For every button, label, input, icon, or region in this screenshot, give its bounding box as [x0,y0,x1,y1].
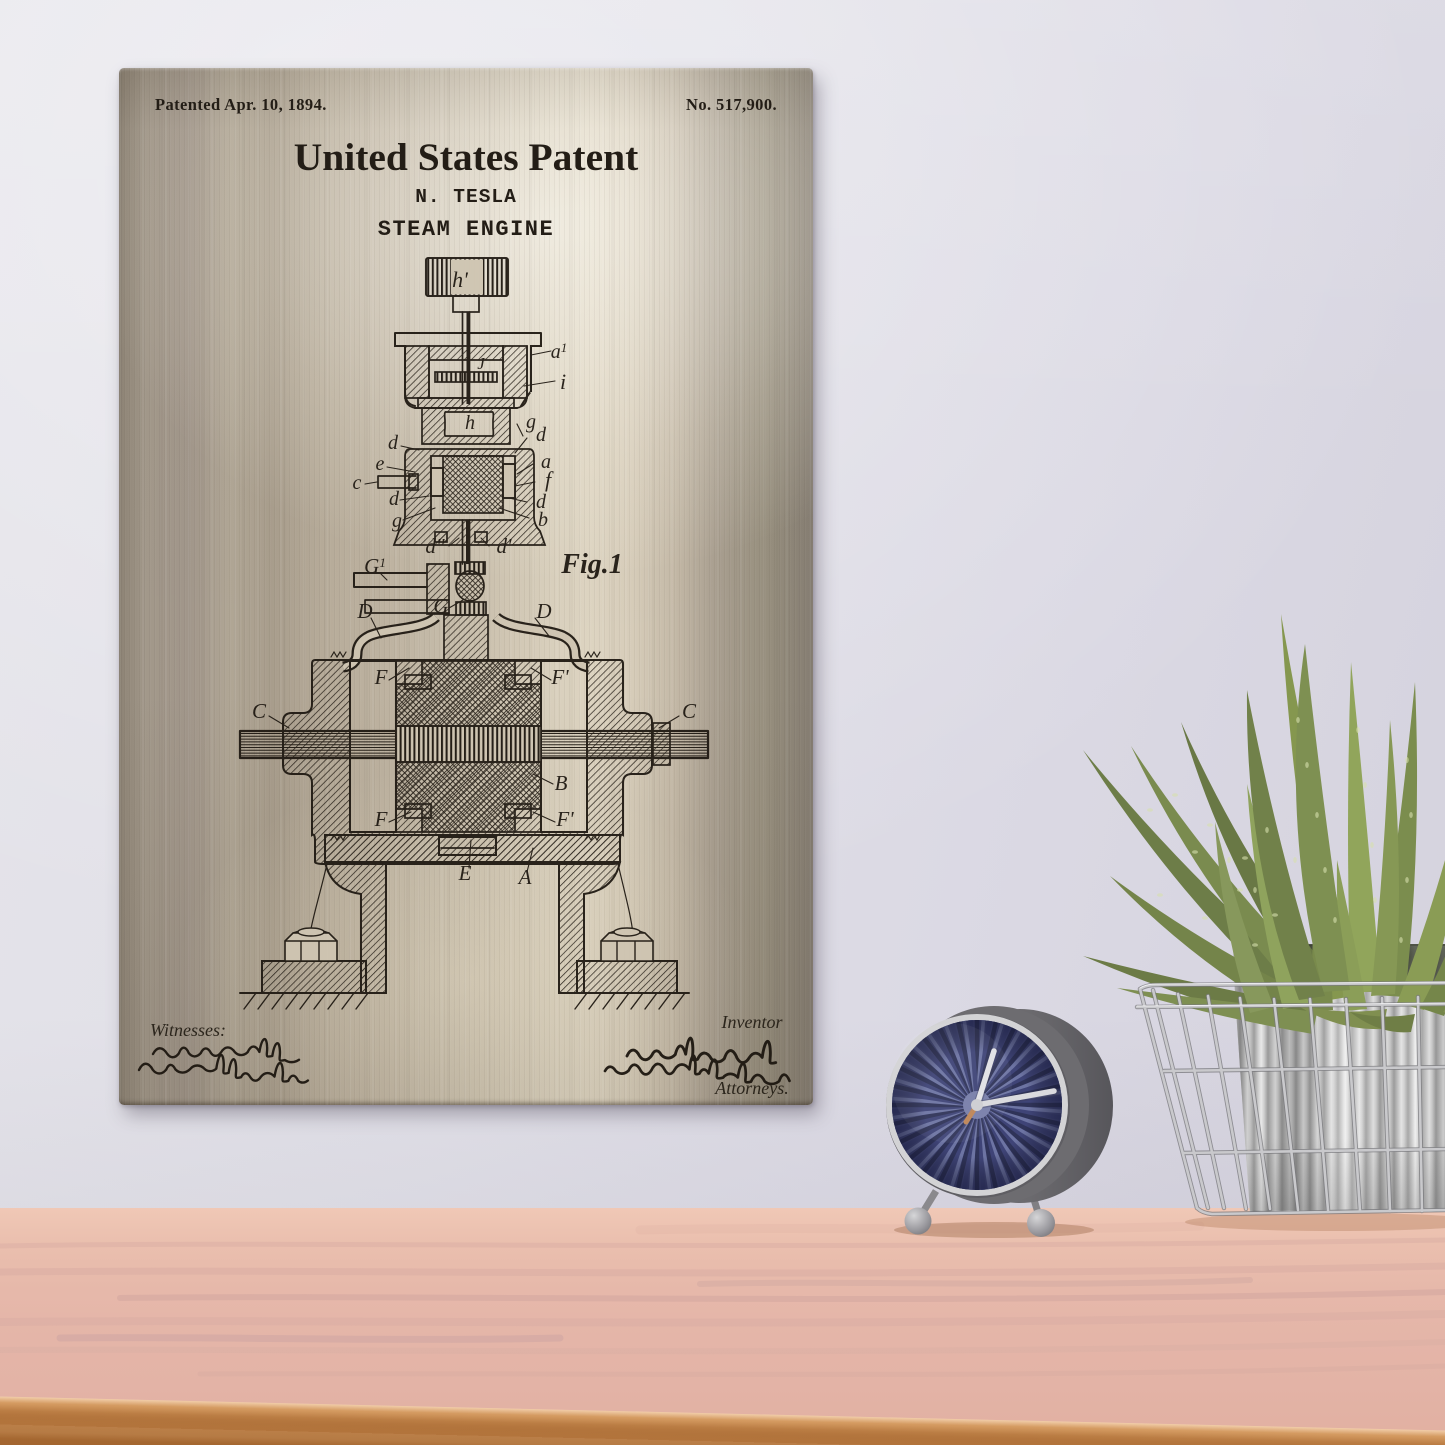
svg-text:G: G [433,594,448,618]
svg-text:C: C [682,699,697,723]
svg-text:h': h' [452,267,468,292]
svg-text:D: D [535,599,551,623]
svg-text:F: F [374,807,388,831]
svg-text:D: D [356,599,372,623]
svg-text:d': d' [497,534,513,558]
svg-text:F': F' [550,665,569,689]
svg-text:c: c [353,472,362,494]
svg-text:B: B [555,771,568,795]
svg-text:h: h [465,412,475,434]
svg-text:Witnesses:: Witnesses: [150,1020,226,1040]
svg-text:G1: G1 [364,554,386,578]
svg-text:C: C [252,699,267,723]
svg-text:d": d" [425,534,445,558]
svg-text:b: b [538,509,548,531]
svg-text:d: d [388,432,399,454]
svg-text:e: e [376,453,385,475]
svg-text:g: g [526,411,536,433]
svg-text:Fig.1: Fig.1 [560,549,622,580]
svg-text:f: f [545,467,554,492]
svg-text:F': F' [555,807,574,831]
svg-text:d: d [389,488,400,510]
svg-text:d: d [536,424,547,446]
svg-text:i: i [560,369,566,394]
svg-text:E: E [458,861,472,885]
svg-text:A: A [517,865,532,889]
svg-text:F: F [374,665,388,689]
svg-text:g: g [392,510,402,532]
svg-text:Inventor: Inventor [721,1012,784,1032]
svg-text:a1: a1 [551,340,568,363]
